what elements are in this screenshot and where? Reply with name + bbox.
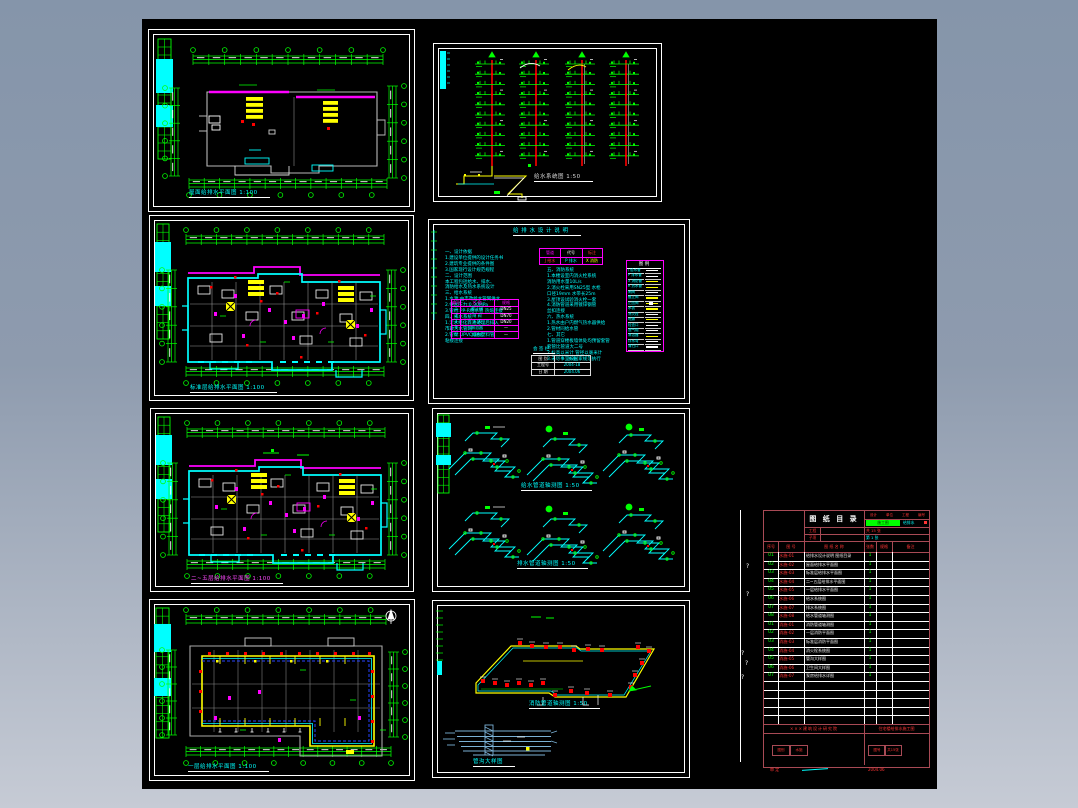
drawing-code: 消施-03 bbox=[779, 638, 803, 647]
legend-symbol-line bbox=[646, 336, 658, 337]
project-row-label: 子项 bbox=[805, 535, 820, 541]
sheet-count: 1 bbox=[864, 621, 876, 630]
drawing-code: 水施-02 bbox=[779, 561, 803, 570]
fold-mark: ? bbox=[741, 675, 744, 681]
revision-mark bbox=[802, 768, 828, 771]
column-header: 图 纸 名 称 bbox=[804, 542, 864, 552]
drawing-name: 给排水设计说明 图纸目录 bbox=[806, 552, 863, 561]
note-line: 七、其它 bbox=[547, 333, 565, 338]
legend-symbol-mark bbox=[649, 302, 653, 305]
footer-box: 共15张 bbox=[884, 745, 902, 756]
pipe-code-cell: X 消防 bbox=[582, 257, 602, 265]
drawing-name: 标准层给排水平面图 bbox=[806, 569, 863, 578]
drawing-name: 一层给排水平面图 bbox=[806, 586, 863, 595]
drawing-name: 消防管道轴测图 bbox=[806, 621, 863, 630]
drawing-name: 泵房给排水详图 bbox=[806, 672, 863, 681]
row-number: 02 bbox=[764, 629, 778, 638]
cad-viewer-page: { "window": { "background_top": "#8595aa… bbox=[0, 0, 1078, 808]
drawing-title: 屋面给排水平面图 1:100 bbox=[189, 190, 270, 198]
drawing-list-table: 图 纸 目 录设计单位工程编号施工图给排水工程子项共 15 张第 1 张序号图 … bbox=[763, 510, 930, 768]
column-header: 规格 bbox=[876, 542, 892, 552]
legend-symbol-line bbox=[646, 330, 658, 331]
drawing-name: 二~五层给排水平面图 bbox=[806, 578, 863, 587]
column-header: 序号 bbox=[764, 542, 778, 552]
panel-design-notes[interactable]: 给 排 水 设 计 说 明 一、设计依据1.建设单位提供的设计任务书2.建筑专业… bbox=[428, 219, 690, 404]
record-table-title: 会 签 栏 bbox=[533, 347, 555, 354]
drawing-title: 排水管道轴测图 1:50 bbox=[517, 561, 588, 569]
drawing-title: 给水管道轴测图 1:50 bbox=[521, 483, 592, 491]
cad-viewport: 屋面给排水平面图 1:100 给水系统图 1:50 标准层给排水平面图 1:10… bbox=[142, 19, 937, 789]
row-number: 07 bbox=[764, 604, 778, 613]
drawing-name: 给水系统图 bbox=[806, 595, 863, 604]
sheet-count: 1 bbox=[864, 655, 876, 664]
row-number: 08 bbox=[764, 612, 778, 621]
drawing-code: 消施-05 bbox=[779, 655, 803, 664]
stage-cell: 施工图 bbox=[866, 520, 900, 526]
drawing-title: 二~五层给排水平面图 1:100 bbox=[191, 576, 283, 584]
header-mini-cell: 工程 bbox=[898, 512, 913, 519]
sheet-count: 1 bbox=[864, 612, 876, 621]
note-line: 4.消防管道采用镀锌钢管 bbox=[547, 303, 596, 308]
drawing-title: 消防管道轴测图 1:50 bbox=[529, 701, 600, 709]
fold-mark: ? bbox=[746, 564, 749, 570]
drawing-name: 标准层消防平面图 bbox=[806, 638, 863, 647]
sheet-count: 1 bbox=[864, 561, 876, 570]
pipe-code-cell: P 排水 bbox=[560, 257, 583, 265]
fold-mark: ? bbox=[741, 651, 744, 657]
note-line: 五、消防系统 bbox=[547, 268, 574, 273]
drawing-code: 消施-04 bbox=[779, 647, 803, 656]
footer-box: 水施 bbox=[790, 745, 808, 756]
material-table: 编号名 称规格1截止阀DN252闸 阀DN703水 表DN204淋浴器—5大便器… bbox=[451, 299, 519, 339]
record-label: 日 期 bbox=[532, 369, 555, 375]
check-mark bbox=[924, 521, 927, 524]
drawing-code: 消施-02 bbox=[779, 629, 803, 638]
sheet-count: 1 bbox=[864, 578, 876, 587]
fold-mark: ? bbox=[746, 592, 749, 598]
sheet-count: 1 bbox=[864, 586, 876, 595]
discipline-cell: 给排水 bbox=[903, 519, 923, 527]
panel-axonometric-diagrams[interactable]: 给水管道轴测图 1:50 排水管道轴测图 1:50 bbox=[432, 408, 690, 592]
note-line: 3.屋顶设试验消火栓一套 bbox=[547, 298, 596, 303]
column-header: 备注 bbox=[892, 542, 929, 552]
header-mini-cell: 单位 bbox=[882, 512, 897, 519]
date-note: 2004.06 bbox=[868, 767, 885, 772]
sheet-count: 1 bbox=[864, 595, 876, 604]
pipe-code-table: 管道代号标注J 给水P 排水X 消防 bbox=[539, 248, 603, 265]
row-number: 03 bbox=[764, 569, 778, 578]
legend-symbol-line bbox=[646, 276, 658, 277]
row-number: 01 bbox=[764, 552, 778, 561]
drawing-code: 水施-07 bbox=[779, 604, 803, 613]
legend-symbol-line bbox=[646, 281, 658, 282]
sheet-count: 1 bbox=[864, 664, 876, 673]
divider bbox=[864, 511, 865, 541]
row-number: 03 bbox=[764, 638, 778, 647]
drawing-title: 管沟大样图 bbox=[473, 759, 515, 767]
fold-line bbox=[740, 510, 741, 762]
note-line: 2.消火栓采用SN25型 水枪 bbox=[547, 286, 601, 291]
floor-plan-drawing bbox=[150, 216, 413, 400]
legend-symbol-line bbox=[646, 314, 658, 315]
legend-symbol-line bbox=[646, 319, 658, 320]
row-number: 05 bbox=[764, 655, 778, 664]
note-line: 2.管材同给水管 bbox=[547, 327, 578, 332]
sheet-count: 1 bbox=[864, 647, 876, 656]
sheet-count: 1 bbox=[864, 629, 876, 638]
row-number: 05 bbox=[764, 586, 778, 595]
panel-roof-plan[interactable]: 屋面给排水平面图 1:100 bbox=[148, 29, 415, 212]
note-line: 口径19mm 水带长25m bbox=[547, 292, 596, 297]
record-table: 图 别水 施工程号2004-18日 期2004.06 bbox=[531, 355, 591, 376]
drawing-code: 水施-08 bbox=[779, 612, 803, 621]
drawing-name: 排水系统图 bbox=[806, 604, 863, 613]
fire-loop-drawing bbox=[433, 601, 689, 777]
fold-mark: ? bbox=[745, 661, 748, 667]
drawing-name: 给水管道轴测图 bbox=[806, 612, 863, 621]
sheet-count: 1 bbox=[864, 604, 876, 613]
note-line: 1.热水由户内燃气热水器供给 bbox=[547, 321, 605, 326]
drawing-code: 水施-01 bbox=[779, 552, 803, 561]
legend-symbol bbox=[645, 344, 661, 350]
header-mini-cell: 设计 bbox=[866, 512, 881, 519]
row-number: 04 bbox=[764, 578, 778, 587]
drawing-code: 水施-06 bbox=[779, 595, 803, 604]
row-number: 01 bbox=[764, 621, 778, 630]
floor-plan-drawing bbox=[151, 409, 413, 591]
note-line: 1.管道穿楼板墙体处均预留套管 bbox=[547, 339, 610, 344]
legend-symbol-line bbox=[646, 287, 658, 288]
legend-symbol-line bbox=[646, 308, 658, 309]
footer-box: 图别 bbox=[772, 745, 790, 756]
header-mini-cell: 编号 bbox=[914, 512, 929, 519]
legend-symbol-line bbox=[646, 346, 658, 347]
panel-floors-2-5-plan[interactable]: 二~五层给排水平面图 1:100 bbox=[150, 408, 414, 592]
ground-plan-drawing bbox=[150, 600, 414, 780]
panel-water-riser-diagram[interactable]: 给水系统图 1:50 bbox=[433, 43, 662, 202]
row-number: 02 bbox=[764, 561, 778, 570]
drawing-name: 卫生间大样图 bbox=[806, 664, 863, 673]
project-name: 住宅楼给排水施工图 bbox=[866, 725, 927, 733]
sheet-count: 1 bbox=[864, 552, 876, 561]
drawing-title: 标准层给排水平面图 1:100 bbox=[190, 385, 277, 393]
panel-standard-floor-plan[interactable]: 标准层给排水平面图 1:100 bbox=[149, 215, 414, 401]
legend-symbol-line bbox=[646, 297, 658, 298]
material-cell: 大便器 bbox=[460, 332, 495, 339]
panel-fire-loop-diagram[interactable]: 消防管道轴测图 1:50 管沟大样图 bbox=[432, 600, 690, 778]
drawing-name: 一层消防平面图 bbox=[806, 629, 863, 638]
roof-plan-drawing bbox=[149, 30, 414, 211]
drawing-name: 管沟大样图 bbox=[806, 655, 863, 664]
sheet-number: 第 1 张 bbox=[866, 535, 926, 541]
legend-symbol-line bbox=[646, 270, 658, 271]
column-header: 图 号 bbox=[778, 542, 804, 552]
divider bbox=[820, 527, 821, 541]
note-line: 六、热水系统 bbox=[547, 315, 574, 320]
drawing-name: 屋面给排水平面图 bbox=[806, 561, 863, 570]
drawing-code: 水施-03 bbox=[779, 569, 803, 578]
material-cell: — bbox=[494, 332, 518, 339]
project-row-label: 工程 bbox=[805, 528, 820, 534]
legend-symbol-line bbox=[646, 325, 658, 326]
sheets-total: 共 15 张 bbox=[866, 528, 926, 534]
record-value: 2004.06 bbox=[554, 369, 590, 375]
design-institute: ×××建筑设计研究院 bbox=[766, 725, 862, 733]
drawing-code: 消施-06 bbox=[779, 664, 803, 673]
row-number: 06 bbox=[764, 595, 778, 604]
column-header: 张数 bbox=[864, 542, 876, 552]
drawing-code: 水施-05 bbox=[779, 586, 803, 595]
divider bbox=[864, 724, 865, 765]
note-line: 1.本楼设室内消火栓系统 bbox=[547, 274, 596, 279]
pipe-code-cell: J 给水 bbox=[540, 257, 561, 265]
row-number: 07 bbox=[764, 672, 778, 681]
drawing-code: 消施-01 bbox=[779, 621, 803, 630]
drawing-code: 水施-04 bbox=[779, 578, 803, 587]
drawing-list-title: 图 纸 目 录 bbox=[804, 511, 865, 528]
panel-ground-floor-plan[interactable]: 一层给排水平面图 1:100 bbox=[149, 599, 415, 781]
legend-symbol-line bbox=[646, 341, 658, 342]
drawing-list-sheet[interactable]: 图 纸 目 录设计单位工程编号施工图给排水工程子项共 15 张第 1 张序号图 … bbox=[740, 508, 930, 774]
approval-note: 审 定 bbox=[770, 767, 779, 772]
divider bbox=[764, 733, 929, 734]
sheet-count: 1 bbox=[864, 672, 876, 681]
notes-title: 给 排 水 设 计 说 明 bbox=[513, 228, 581, 236]
legend-symbol-line bbox=[646, 292, 658, 293]
sheet-count: 1 bbox=[864, 638, 876, 647]
legend-table: 图 例J 给水管P 排水管X 消防管R 热水管闸阀截止阀止回阀水表消火栓地漏检查… bbox=[626, 260, 664, 352]
row-number: 06 bbox=[764, 664, 778, 673]
title-block-logo-cell bbox=[764, 511, 805, 542]
note-line: 消防用水量10L/s bbox=[547, 280, 582, 285]
row-number: 04 bbox=[764, 647, 778, 656]
drawing-code: 消施-07 bbox=[779, 672, 803, 681]
drawing-title: 给水系统图 1:50 bbox=[534, 174, 593, 182]
drawing-name: 消火栓系统图 bbox=[806, 647, 863, 656]
legend-label: 清扫口 bbox=[628, 344, 644, 350]
note-line: 丝扣连接 bbox=[547, 309, 565, 314]
drawing-title: 一层给排水平面图 1:100 bbox=[188, 764, 269, 772]
sheet-count: 1 bbox=[864, 569, 876, 578]
